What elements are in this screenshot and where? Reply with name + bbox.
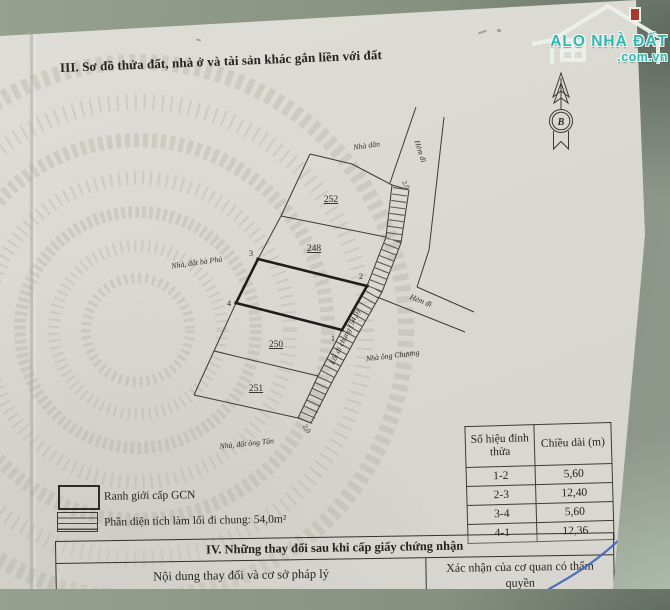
- alo-nha-dat-logo: ALO NHÀ ĐẤT .com.vn: [522, 0, 670, 70]
- document-page: III. Sơ đồ thửa đất, nhà ở và tài sản kh…: [0, 0, 670, 589]
- blue-pen-stroke: [0, 0, 670, 589]
- logo-domain-text: .com.vn: [617, 50, 668, 64]
- photo-of-land-certificate: { "colors": { "fabric": "#8e988a", "page…: [0, 0, 670, 589]
- logo-name-text: ALO NHÀ ĐẤT: [550, 33, 668, 51]
